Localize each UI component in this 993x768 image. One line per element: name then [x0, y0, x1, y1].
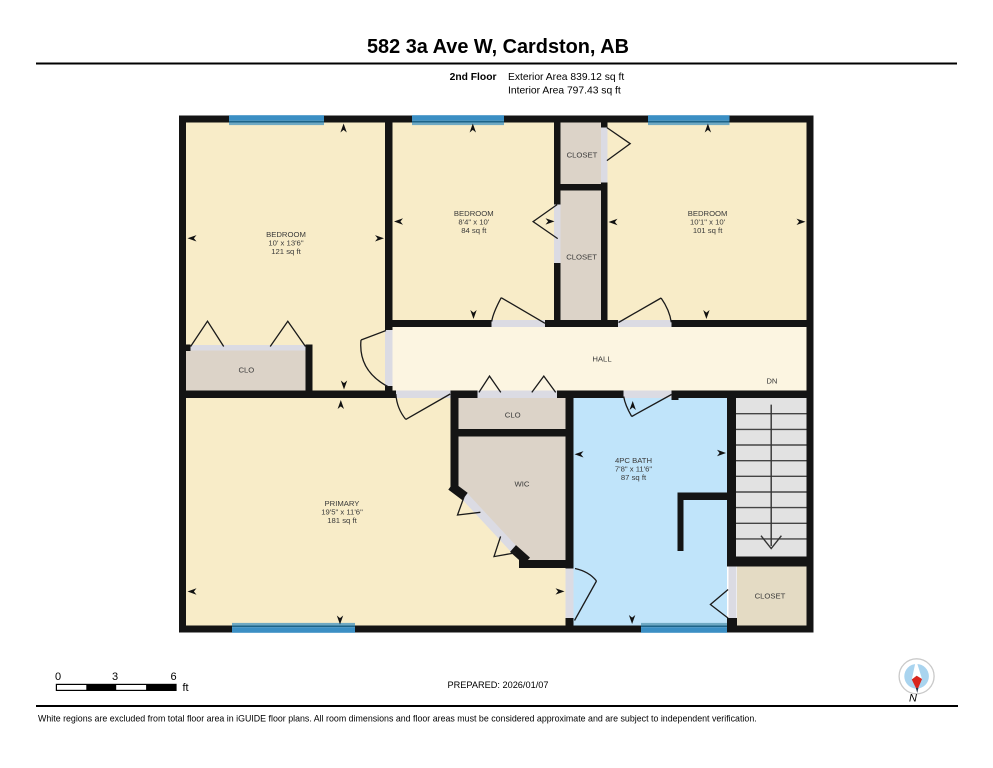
svg-text:White regions are excluded fro: White regions are excluded from total fl…	[38, 714, 757, 724]
svg-text:Exterior Area 839.12 sq ft: Exterior Area 839.12 sq ft	[508, 72, 624, 83]
svg-text:CLO: CLO	[238, 366, 254, 375]
svg-text:HALL: HALL	[592, 355, 612, 364]
svg-text:Interior Area 797.43 sq ft: Interior Area 797.43 sq ft	[508, 86, 621, 97]
svg-text:101 sq ft: 101 sq ft	[693, 226, 723, 235]
svg-text:84 sq ft: 84 sq ft	[461, 226, 487, 235]
svg-text:582 3a Ave W, Cardston, AB: 582 3a Ave W, Cardston, AB	[367, 36, 629, 58]
svg-text:N: N	[909, 693, 917, 705]
svg-text:6: 6	[170, 671, 176, 683]
svg-text:CLOSET: CLOSET	[755, 592, 786, 601]
svg-text:121 sq ft: 121 sq ft	[271, 247, 301, 256]
svg-text:DN: DN	[766, 377, 777, 386]
svg-text:WIC: WIC	[515, 480, 530, 489]
svg-text:87 sq ft: 87 sq ft	[621, 473, 647, 482]
svg-text:CLO: CLO	[505, 411, 521, 420]
svg-text:CLOSET: CLOSET	[567, 150, 598, 159]
svg-text:ft: ft	[183, 682, 189, 694]
svg-text:3: 3	[112, 671, 118, 683]
svg-text:PREPARED: 2026/01/07: PREPARED: 2026/01/07	[448, 680, 549, 690]
svg-text:0: 0	[55, 671, 61, 683]
svg-text:181 sq ft: 181 sq ft	[327, 516, 357, 525]
svg-text:CLOSET: CLOSET	[566, 253, 597, 262]
svg-text:2nd Floor: 2nd Floor	[450, 72, 497, 83]
